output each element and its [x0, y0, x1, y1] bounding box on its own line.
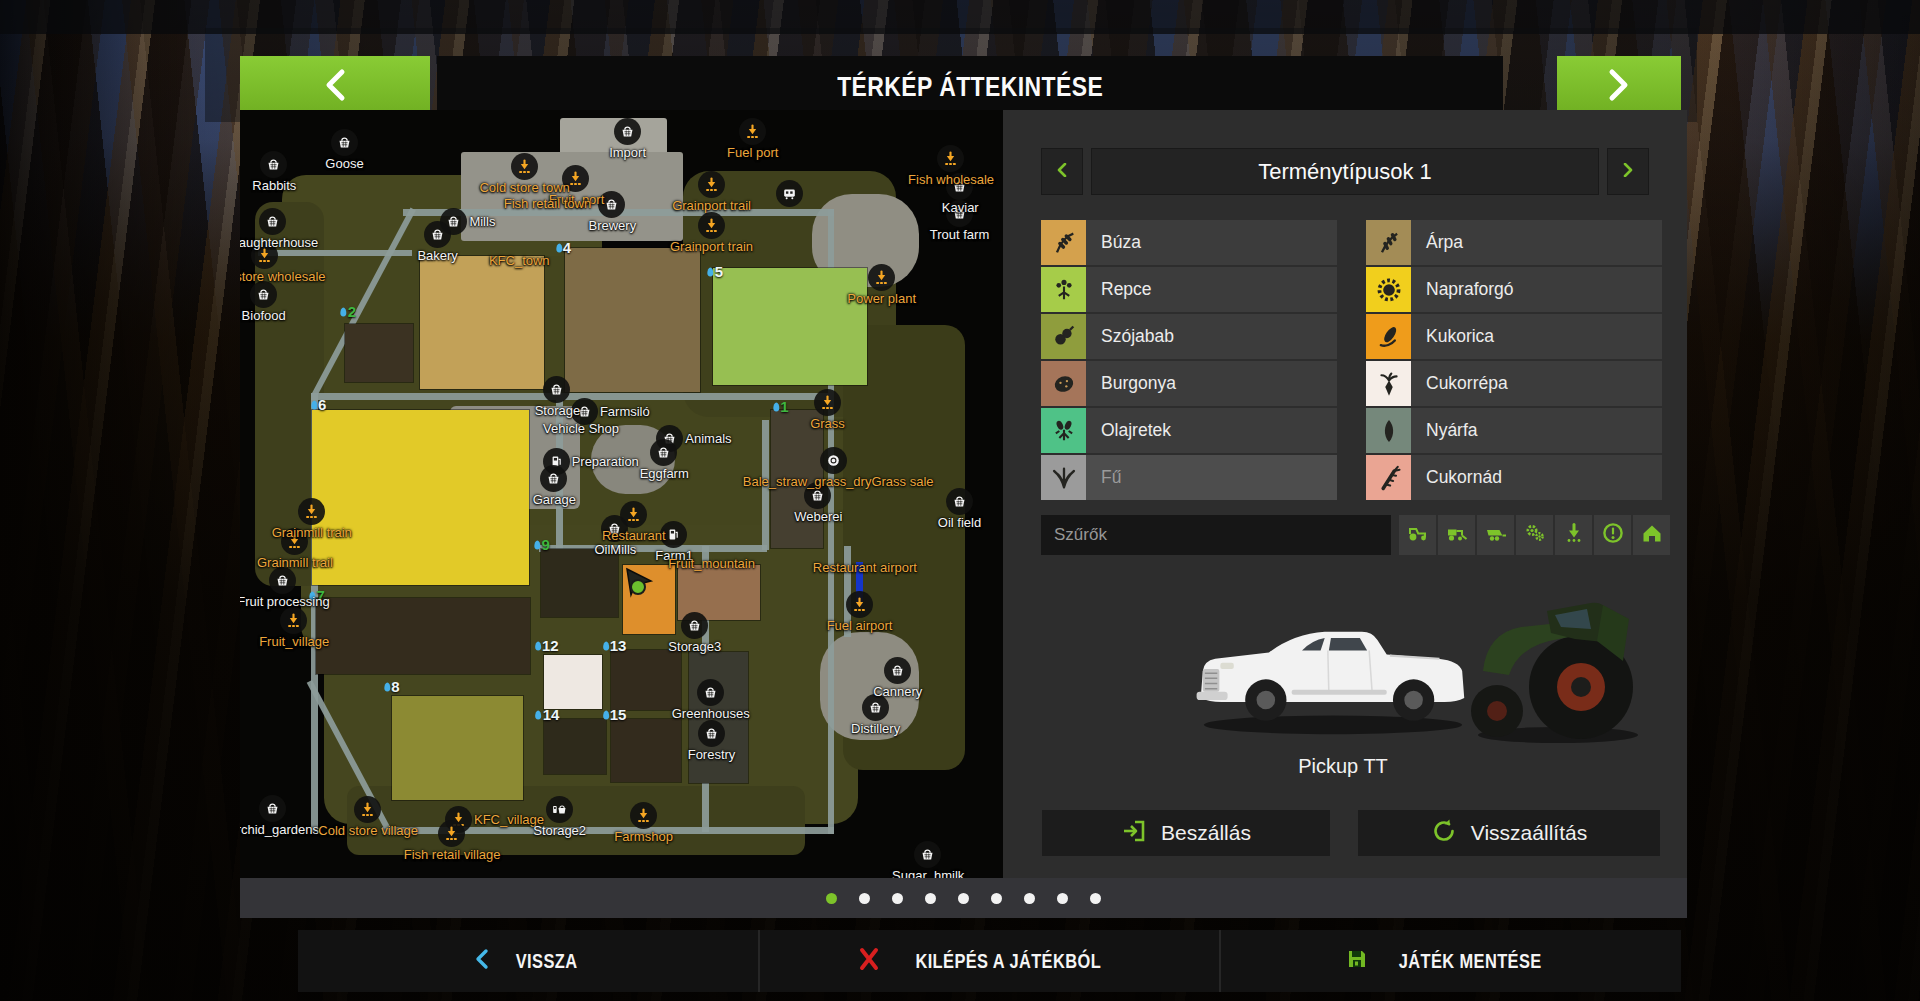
farmshop-unload-icon	[630, 802, 657, 829]
crop-label: Fű	[1086, 467, 1121, 488]
crop-label: Nyárfa	[1411, 420, 1478, 441]
filter-warning-button[interactable]	[1594, 515, 1631, 555]
water-drop-icon	[603, 641, 609, 650]
filter-house-icon	[1640, 521, 1664, 549]
map-label-bakery: Bakery	[417, 248, 457, 263]
filter-house-button[interactable]	[1633, 515, 1670, 555]
filter-tractor-icon	[1406, 521, 1430, 549]
map-label-preparation: Preparation	[572, 454, 639, 469]
filter-harvester-button[interactable]	[1438, 515, 1475, 555]
filter-seeder-button[interactable]	[1555, 515, 1592, 555]
crop-row-napraforg[interactable]: Napraforgó	[1366, 267, 1662, 312]
crop-label: Búza	[1086, 232, 1141, 253]
map-field	[544, 655, 601, 709]
oil-field-basket-icon	[946, 488, 973, 515]
fruit-processing-basket-icon	[269, 567, 296, 594]
grainmill-train-unload-icon	[298, 498, 325, 525]
map-label-vehicle-shop: Vehicle Shop	[543, 421, 619, 436]
next-vehicle-tractor-image	[1463, 575, 1653, 755]
filter-buttons	[1399, 515, 1670, 555]
map-label-grainport-train: Grainport train	[670, 239, 753, 254]
crop-row-ny-rfa[interactable]: Nyárfa	[1366, 408, 1662, 453]
map-label-oilmills: OilMills	[594, 542, 636, 557]
map-label-bale-straw-grass-drygrass-sale: Bale_straw_grass_dryGrass sale	[743, 474, 934, 489]
map-label-fruit-mountain: Fruit_mountain	[668, 556, 755, 571]
enter-vehicle-label: Beszállás	[1161, 821, 1251, 845]
grainport-trail-unload-icon	[698, 171, 725, 198]
map-field	[312, 410, 529, 585]
map-label-restaurant-airport: Restaurant airport	[813, 560, 917, 575]
pickup-truck-image	[1178, 588, 1488, 753]
map-label-orchid-gardens: Orchid_gardens	[240, 822, 319, 837]
page-dot-8[interactable]	[1057, 893, 1068, 904]
filter-harvester-icon	[1445, 521, 1469, 549]
map-label-biofood: Biofood	[242, 308, 286, 323]
field-number-1: 1	[773, 397, 788, 414]
crop-row-sz-jabab[interactable]: Szójabab	[1041, 314, 1337, 359]
grainport-train-unload-icon	[698, 212, 725, 239]
map-field	[611, 719, 681, 782]
page-title-bar: TÉRKÉP ÁTTEKINTÉSE	[437, 56, 1503, 117]
page-dot-2[interactable]	[859, 893, 870, 904]
map-road	[258, 250, 413, 256]
chevron-left-icon	[322, 68, 348, 106]
crop-label: Burgonya	[1086, 373, 1176, 394]
map-label-kaviar: Kaviar	[942, 200, 979, 215]
wheat-icon	[1041, 220, 1086, 265]
map-label-fruit-village: Fruit_village	[259, 634, 329, 649]
map-label-sugar-hmilk: Sugar_hmilk	[892, 868, 964, 878]
crop-row-cukorn-d[interactable]: Cukornád	[1366, 455, 1662, 500]
map-label-farmsil: Farmsiló	[600, 404, 650, 419]
map-label-fish-retail-village: Fish retail village	[404, 847, 501, 862]
water-drop-icon	[534, 540, 540, 549]
map-field	[345, 324, 414, 382]
field-number-15: 15	[603, 706, 627, 723]
map-label-brewery: Brewery	[589, 218, 637, 233]
crop-label: Repce	[1086, 279, 1152, 300]
enter-vehicle-button[interactable]: Beszállás	[1042, 810, 1330, 856]
crop-label: Szójabab	[1086, 326, 1174, 347]
field-number-8: 8	[384, 678, 399, 695]
crop-row-f[interactable]: Fű	[1041, 455, 1337, 500]
crop-column-left: BúzaRepceSzójababBurgonyaOlajretekFű	[1041, 220, 1337, 502]
back-chevron-icon	[471, 947, 495, 976]
rabbits-basket-icon	[260, 151, 287, 178]
sunflower-icon	[1366, 267, 1411, 312]
field-number-13: 13	[603, 636, 627, 653]
page-dot-9[interactable]	[1090, 893, 1101, 904]
close-x-icon	[857, 947, 881, 976]
sugar-hmilk-basket-icon	[914, 841, 941, 868]
biofood-basket-icon	[250, 281, 277, 308]
canola-icon	[1041, 267, 1086, 312]
map-label-import: Import	[609, 145, 646, 160]
crop-row-olajretek[interactable]: Olajretek	[1041, 408, 1337, 453]
grass-unload-icon	[814, 389, 841, 416]
reset-vehicle-button[interactable]: Visszaállítás	[1358, 810, 1660, 856]
chevron-right-icon	[1621, 163, 1635, 181]
map-label-rabbits: Rabbits	[252, 178, 296, 193]
poplar-icon	[1366, 408, 1411, 453]
storage-basket-icon	[543, 376, 570, 403]
map-label-fish-retail-town: Fish retail town	[504, 196, 591, 211]
slaughterhouse-basket-icon	[259, 208, 286, 235]
crop-types-panel: Terménytípusok 1 BúzaRepceSzójababBurgon…	[1003, 110, 1687, 878]
map-field	[420, 256, 544, 389]
page-dot-7[interactable]	[1024, 893, 1035, 904]
save-game-label: JÁTÉK MENTÉSE	[1399, 950, 1542, 973]
map-label-eggfarm: Eggfarm	[640, 466, 689, 481]
map-field	[392, 696, 523, 800]
player-position-icon	[621, 565, 655, 599]
map-field	[541, 549, 619, 617]
water-drop-icon	[708, 267, 714, 276]
map-label-storage3: Storage3	[668, 639, 721, 654]
barley-icon	[1366, 220, 1411, 265]
water-drop-icon	[603, 711, 609, 720]
game-screen: TÉRKÉP ÁTTEKINTÉSE RabbitsGooseImportFue…	[0, 0, 1920, 1001]
sugar-beet-icon	[1366, 361, 1411, 406]
bakery-basket-icon	[424, 221, 451, 248]
crop-label: Cukorrépa	[1411, 373, 1508, 394]
garage-basket-icon	[540, 465, 567, 492]
crop-row-b-za[interactable]: Búza	[1041, 220, 1337, 265]
water-drop-icon	[556, 243, 562, 252]
page-dot-3[interactable]	[892, 893, 903, 904]
back-button[interactable]: VISSZA	[298, 930, 760, 992]
map-label-grainmill-train: Grainmill train	[272, 525, 352, 540]
map-label-forestry: Forestry	[688, 747, 736, 762]
chevron-right-icon	[1606, 68, 1632, 106]
filter-input[interactable]: Szűrők	[1041, 515, 1391, 555]
soybean-icon	[1041, 314, 1086, 359]
crop-label: Kukorica	[1411, 326, 1494, 347]
save-disk-icon	[1345, 947, 1369, 976]
water-drop-icon	[535, 641, 541, 650]
map-label-slaughterhouse: Slaughterhouse	[240, 235, 318, 250]
forestry-basket-icon	[698, 720, 725, 747]
radish-icon	[1041, 408, 1086, 453]
map-label-fuel-airport: Fuel airport	[827, 618, 893, 633]
goose-basket-icon	[331, 129, 358, 156]
page-dot-5[interactable]	[958, 893, 969, 904]
fuel-airport-unload-icon	[846, 591, 873, 618]
field-number-4: 4	[556, 238, 571, 255]
sugarcane-icon	[1366, 455, 1411, 500]
crop-row-repce[interactable]: Repce	[1041, 267, 1337, 312]
corn-icon	[1366, 314, 1411, 359]
bottom-menu-bar: VISSZA KILÉPÉS A JÁTÉKBÓL JÁTÉK MENTÉSE	[298, 930, 1681, 992]
page-title: TÉRKÉP ÁTTEKINTÉSE	[837, 71, 1103, 103]
map-label-goose: Goose	[325, 156, 363, 171]
next-page-button[interactable]	[1557, 56, 1681, 117]
map-label-animals: Animals	[685, 431, 731, 446]
map-label-fruit-processing: Fruit processing	[240, 594, 330, 609]
map-label-cold-store-village: Cold store village	[318, 823, 418, 838]
filter-gears-button[interactable]	[1516, 515, 1553, 555]
enter-icon	[1121, 818, 1147, 849]
filter-seeder-icon	[1562, 521, 1586, 549]
chevron-left-icon	[1055, 163, 1069, 181]
storage3-basket-icon	[681, 612, 708, 639]
vehicle-name: Pickup TT	[1163, 755, 1523, 778]
power-plant-unload-icon	[868, 264, 895, 291]
map-field	[316, 598, 530, 673]
page-dot-4[interactable]	[925, 893, 936, 904]
map-label-mills: Mills	[469, 214, 495, 229]
field-number-2: 2	[341, 303, 356, 320]
map-label-greenhouses: Greenhouses	[672, 706, 750, 721]
map-field	[611, 650, 681, 710]
crop-page-title: Terménytípusok 1	[1258, 159, 1432, 185]
field-number-5: 5	[708, 262, 723, 279]
map-label-grass: Grass	[810, 416, 845, 431]
filter-placeholder: Szűrők	[1054, 525, 1107, 545]
map-label-power-plant: Power plant	[847, 291, 916, 306]
filter-warning-icon	[1601, 521, 1625, 549]
filter-trailer-button[interactable]	[1477, 515, 1514, 555]
crop-label: Árpa	[1411, 232, 1463, 253]
field-number-9: 9	[534, 535, 549, 552]
map-panel[interactable]: RabbitsGooseImportFuel portFish wholesal…	[240, 110, 1003, 878]
import-basket-icon	[614, 118, 641, 145]
storage2-fuel-basket-icon	[546, 796, 573, 823]
cannery-basket-icon	[884, 657, 911, 684]
crop-row-kukorica[interactable]: Kukorica	[1366, 314, 1662, 359]
quit-game-button[interactable]: KILÉPÉS A JÁTÉKBÓL	[760, 930, 1222, 992]
map-label-storage: Storage	[535, 403, 581, 418]
water-drop-icon	[384, 683, 390, 692]
map-label-grainport-trail: Grainport trail	[672, 198, 751, 213]
crop-label: Olajretek	[1086, 420, 1171, 441]
field-number-6: 6	[311, 396, 326, 413]
map-label-restaurant: Restaurant	[602, 528, 666, 543]
field-number-12: 12	[535, 636, 559, 653]
map-label-oil-field: Oil field	[938, 515, 981, 530]
crop-label: Napraforgó	[1411, 279, 1514, 300]
field-number-14: 14	[536, 706, 560, 723]
filter-trailer-icon	[1484, 521, 1508, 549]
map-label-weberei: Weberei	[794, 509, 842, 524]
map-label-storage2: Storage2	[533, 823, 586, 838]
reset-vehicle-label: Visszaállítás	[1471, 821, 1587, 845]
water-drop-icon	[311, 401, 317, 410]
map-road	[311, 393, 832, 400]
crop-label: Cukornád	[1411, 467, 1502, 488]
page-dot-6[interactable]	[991, 893, 1002, 904]
fuel-port-unload-icon	[739, 118, 766, 145]
map-label-trout-farm: Trout farm	[930, 227, 989, 242]
crop-page-title-box: Terménytípusok 1	[1091, 148, 1599, 195]
water-drop-icon	[773, 402, 779, 411]
map-label-fuel-port: Fuel port	[727, 145, 778, 160]
save-game-button[interactable]: JÁTÉK MENTÉSE	[1221, 930, 1681, 992]
grass-icon	[1041, 455, 1086, 500]
map-label-grainmill-trail: Grainmill trail	[257, 555, 333, 570]
quit-game-label: KILÉPÉS A JÁTÉKBÓL	[916, 950, 1102, 973]
filter-tractor-button[interactable]	[1399, 515, 1436, 555]
water-drop-icon	[536, 711, 542, 720]
map-label-fish-wholesale: Fish wholesale	[908, 172, 994, 187]
map-label-garage: Garage	[533, 492, 576, 507]
potato-icon	[1041, 361, 1086, 406]
page-dots-strip	[240, 878, 1687, 918]
prev-page-button[interactable]	[240, 56, 430, 117]
reset-icon	[1431, 818, 1457, 849]
back-label: VISSZA	[516, 950, 578, 973]
map-label-farmshop: Farmshop	[614, 829, 673, 844]
crop-page-prev-button[interactable]	[1041, 148, 1083, 195]
train-wagon-icon	[776, 180, 803, 207]
cold-store-town-unload-icon	[511, 153, 538, 180]
map-field	[713, 268, 867, 385]
page-dot-1[interactable]	[826, 893, 837, 904]
map-field	[544, 719, 607, 774]
greenhouses-basket-icon	[697, 679, 724, 706]
filter-gears-icon	[1523, 521, 1547, 549]
crop-row-burgonya[interactable]: Burgonya	[1041, 361, 1337, 406]
map-label-cannery: Cannery	[873, 684, 922, 699]
fish-wholesale-unload-icon	[937, 145, 964, 172]
crop-row-rpa[interactable]: Árpa	[1366, 220, 1662, 265]
crop-column-right: ÁrpaNapraforgóKukoricaCukorrépaNyárfaCuk…	[1366, 220, 1662, 502]
map-label-distillery: Distillery	[851, 721, 900, 736]
map-label-cold-store-wholesale: Cold store wholesale	[240, 269, 326, 284]
map-field	[565, 248, 700, 392]
crop-page-next-button[interactable]	[1607, 148, 1649, 195]
orchid-gardens-basket-icon	[259, 795, 286, 822]
map-label-kfc-town: KFC_town	[489, 253, 550, 268]
water-drop-icon	[341, 308, 347, 317]
crop-row-cukorr-pa[interactable]: Cukorrépa	[1366, 361, 1662, 406]
